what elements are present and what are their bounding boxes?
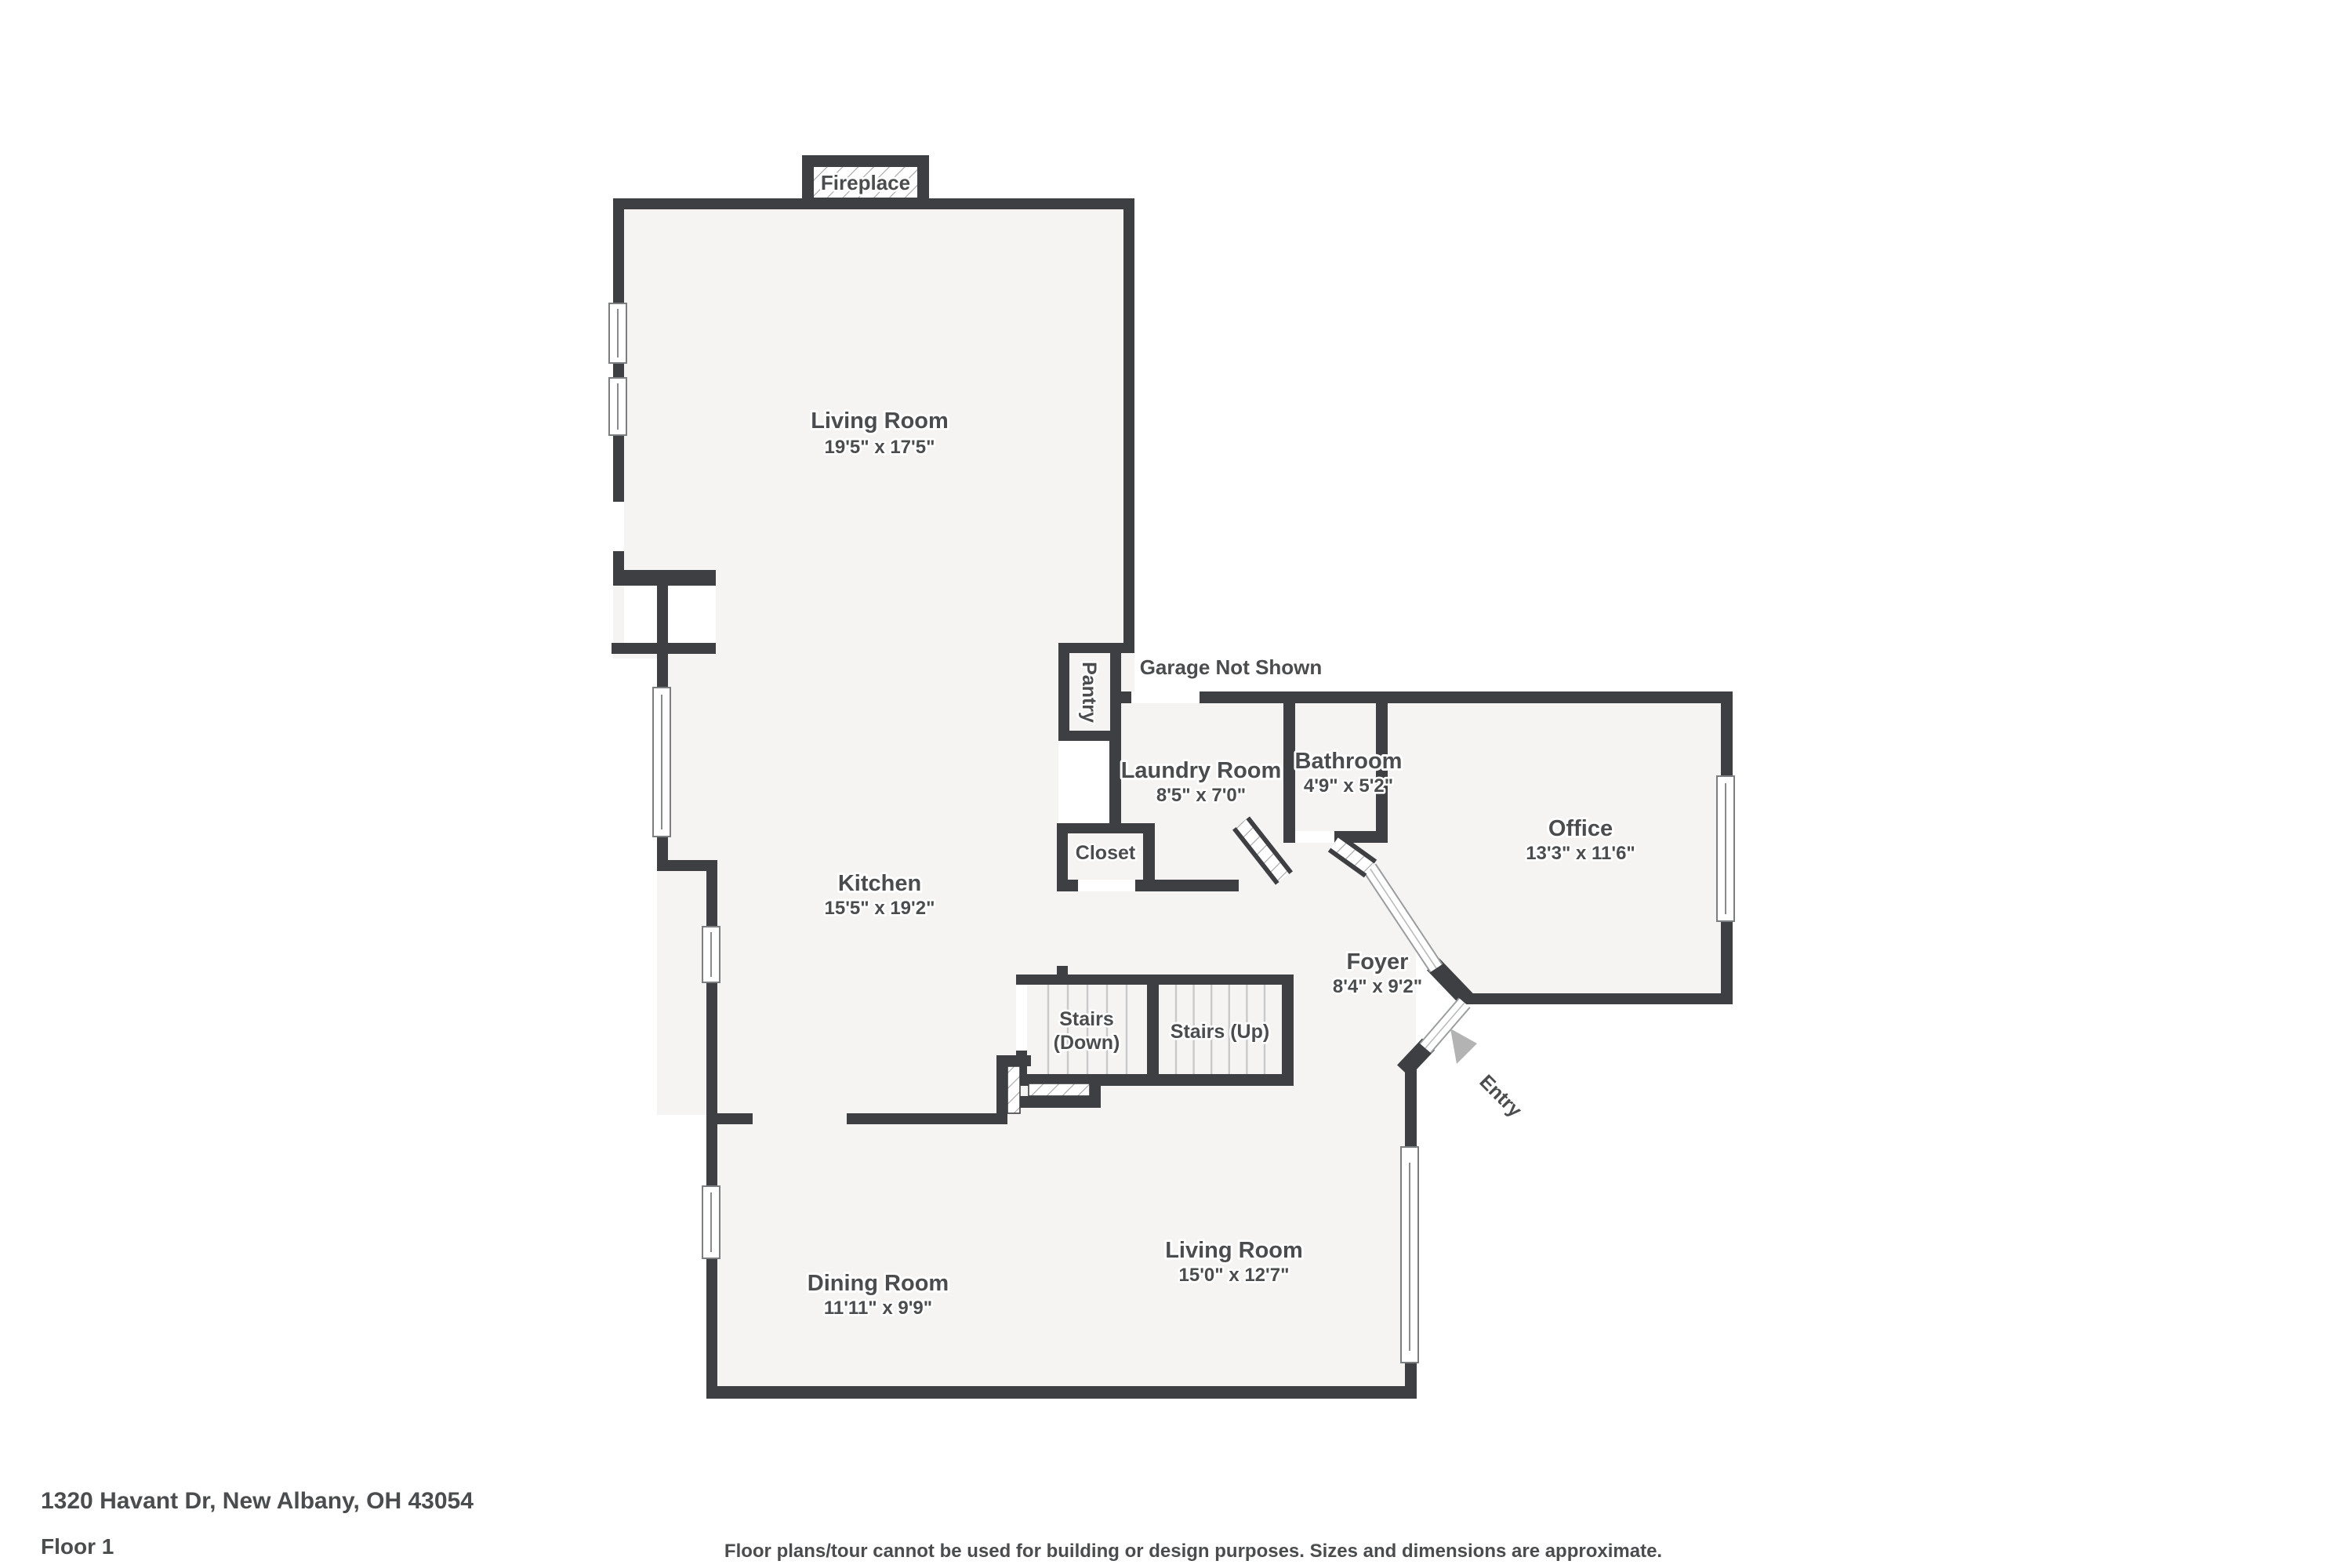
room-dims-laundry: 8'5" x 7'0" — [1156, 785, 1246, 806]
window-dining-left — [702, 1186, 720, 1258]
room-dims-living-room-top: 19'5" x 17'5" — [825, 437, 935, 458]
room-label-stairs-down-line2: (Down) — [1054, 1032, 1120, 1054]
fireplace-label: Fireplace — [821, 171, 910, 194]
room-dims-bathroom: 4'9" x 5'2" — [1304, 775, 1393, 797]
floor-plan-page: Fireplace Living Room 19'5" x 17'5" Gara… — [0, 0, 2352, 1568]
floor-plan-canvas: Fireplace Living Room 19'5" x 17'5" Gara… — [0, 0, 2352, 1568]
footer-address: 1320 Havant Dr, New Albany, OH 43054 — [41, 1488, 474, 1514]
window-living-left-1 — [609, 303, 626, 363]
room-label-living-room-bottom: Living Room — [1165, 1238, 1303, 1263]
room-label-laundry: Laundry Room — [1121, 758, 1282, 783]
room-dims-office: 13'3" x 11'6" — [1526, 843, 1635, 864]
room-label-office: Office — [1548, 816, 1613, 841]
room-label-bathroom: Bathroom — [1295, 749, 1403, 774]
garage-note-label: Garage Not Shown — [1140, 655, 1323, 679]
room-label-pantry: Pantry — [1078, 662, 1100, 723]
room-label-stairs-up: Stairs (Up) — [1171, 1021, 1269, 1043]
room-dims-living-room-bottom: 15'0" x 12'7" — [1179, 1265, 1290, 1286]
window-living-left-2 — [609, 378, 626, 435]
room-label-closet: Closet — [1076, 842, 1136, 864]
window-kitchen-left — [653, 688, 670, 837]
room-label-kitchen: Kitchen — [838, 871, 921, 896]
room-label-foyer: Foyer — [1347, 949, 1409, 975]
footer-disclaimer: Floor plans/tour cannot be used for buil… — [724, 1541, 1662, 1562]
footer-floor-label: Floor 1 — [41, 1534, 114, 1559]
room-dims-dining: 11'11" x 9'9" — [824, 1298, 932, 1319]
room-dims-kitchen: 15'5" x 19'2" — [825, 898, 935, 919]
room-dims-foyer: 8'4" x 9'2" — [1333, 976, 1422, 997]
window-office-right — [1717, 776, 1734, 921]
window-kitchen-left-lower — [702, 927, 720, 982]
room-label-stairs-down-line1: Stairs — [1059, 1008, 1113, 1030]
room-label-dining: Dining Room — [808, 1271, 949, 1296]
window-living-bottom-right — [1401, 1147, 1418, 1363]
room-label-living-room-top: Living Room — [811, 408, 949, 434]
